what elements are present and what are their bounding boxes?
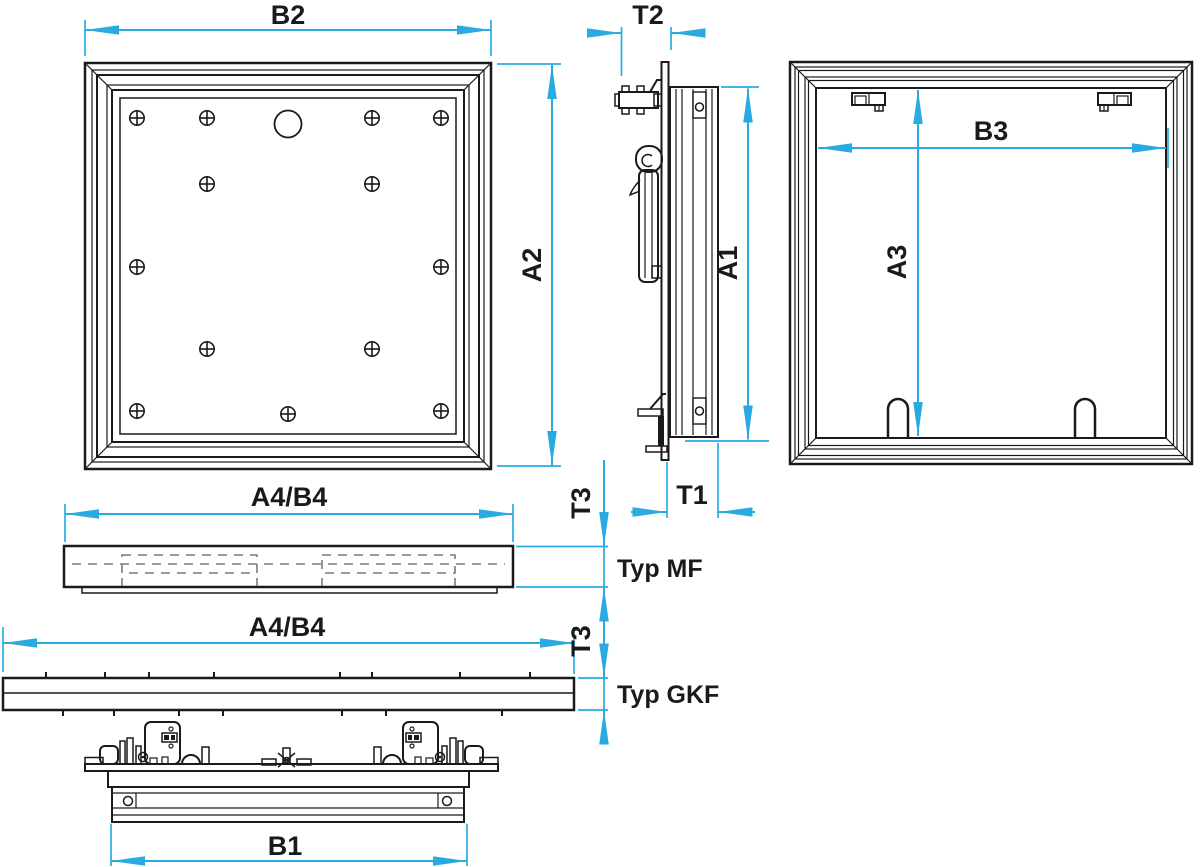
- side-screw-bottom: [693, 398, 706, 424]
- technical-drawing: B2 A2: [0, 0, 1200, 867]
- latch-hardware: [100, 722, 209, 764]
- rear-view: B3 A3: [790, 62, 1192, 464]
- dim-t1: T1: [631, 443, 755, 518]
- section-mf: A4/B4 T3 Typ MF: [64, 460, 703, 613]
- screw-icons: [130, 111, 448, 421]
- label-a4b4-mf: A4/B4: [251, 482, 328, 512]
- section-gkf: A4/B4 T3 Typ GKF: [3, 612, 719, 744]
- side-handle: [630, 146, 662, 282]
- hinge-hook: [888, 399, 908, 437]
- latch-bracket: [1098, 93, 1131, 111]
- latch-hardware: [374, 722, 483, 764]
- label-typ-mf: Typ MF: [617, 555, 703, 583]
- side-body: [670, 87, 718, 437]
- label-b2: B2: [271, 0, 306, 30]
- profile-hole: [124, 797, 133, 806]
- label-t3-mf: T3: [566, 487, 596, 519]
- hinge-hook: [1075, 399, 1095, 437]
- front-door-panel: [120, 98, 456, 434]
- dim-a4b4-gkf: A4/B4: [3, 612, 574, 674]
- lock-hole: [275, 111, 302, 138]
- label-a1: A1: [713, 246, 743, 281]
- section-gkf-panel: [3, 678, 574, 710]
- dim-a1: A1: [685, 87, 769, 441]
- dim-t3-gkf: T3: [566, 620, 608, 744]
- label-b3: B3: [974, 116, 1009, 146]
- side-screw-top: [693, 92, 706, 118]
- latch-bracket: [852, 93, 885, 111]
- profile-hole: [443, 797, 452, 806]
- bottom-view: B1: [85, 722, 498, 866]
- label-t1: T1: [676, 480, 708, 510]
- dim-b2: B2: [85, 0, 491, 56]
- side-flange-plate: [662, 62, 669, 460]
- dim-t2: T2: [595, 0, 697, 76]
- hidden-lines: [72, 555, 505, 586]
- label-typ-gkf: Typ GKF: [617, 681, 719, 709]
- dim-t3-mf: T3: [516, 460, 608, 613]
- side-view: T2 A1 T1: [595, 0, 769, 518]
- label-a2: A2: [517, 248, 547, 283]
- side-bottom-latch: [638, 394, 667, 452]
- label-a3: A3: [882, 245, 912, 280]
- technical-drawing-page: B2 A2: [0, 0, 1200, 867]
- front-view: B2 A2: [85, 0, 561, 469]
- dim-b1: B1: [111, 824, 467, 866]
- dim-a2: A2: [497, 64, 561, 466]
- section-mf-panel: [64, 546, 513, 587]
- dim-b3: B3: [818, 116, 1168, 168]
- label-b1: B1: [268, 831, 303, 861]
- dim-a4b4-mf: A4/B4: [65, 482, 513, 542]
- frame-profile: [112, 787, 464, 822]
- label-t3-gkf: T3: [566, 625, 596, 657]
- side-top-latch: [615, 80, 662, 114]
- label-t2: T2: [632, 0, 664, 30]
- label-a4b4-gkf: A4/B4: [249, 612, 326, 642]
- dim-a3: A3: [882, 90, 918, 436]
